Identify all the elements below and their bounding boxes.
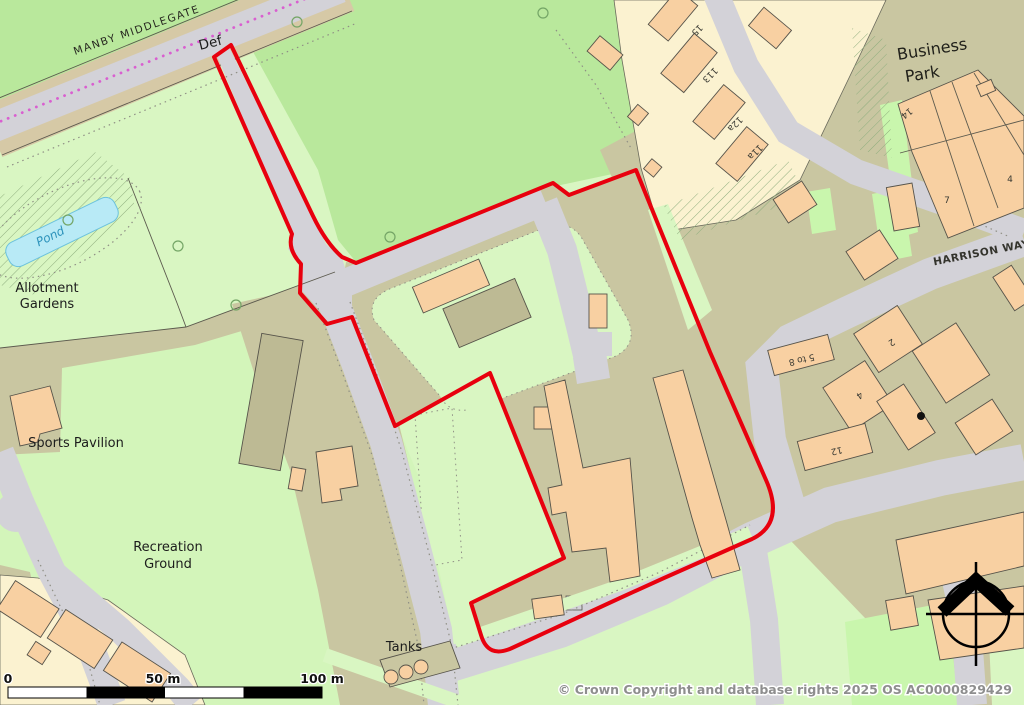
- tank-icon: [384, 670, 398, 684]
- scale-label-0: 0: [4, 671, 13, 686]
- allotment-gardens-label-1: Allotment: [15, 281, 78, 296]
- house-number: 4: [1007, 175, 1013, 185]
- yard-grey-small-2: [598, 332, 612, 356]
- scale-label-50m: 50 m: [146, 671, 181, 686]
- map-canvas: MANBY MIDDLEGATE Def Pond Allotment Gard…: [0, 0, 1024, 705]
- recreation-ground-label-2: Ground: [144, 557, 192, 572]
- building: [589, 294, 607, 328]
- building: [532, 595, 564, 619]
- building: [886, 596, 919, 630]
- point-feature: [917, 412, 925, 420]
- scale-bar-segment: [244, 687, 323, 698]
- tank-icon: [414, 660, 428, 674]
- road-bottom-branch: [752, 545, 770, 705]
- allotment-gardens-label-2: Gardens: [20, 297, 75, 312]
- sports-pavilion-label: Sports Pavilion: [28, 436, 124, 451]
- scale-bar-segment: [87, 687, 166, 698]
- tank-icon: [399, 665, 413, 679]
- tanks-label: Tanks: [385, 640, 423, 655]
- os-site-plan: MANBY MIDDLEGATE Def Pond Allotment Gard…: [0, 0, 1024, 705]
- copyright-attribution: © Crown Copyright and database rights 20…: [558, 682, 1012, 697]
- house-number: 7: [944, 196, 950, 206]
- recreation-ground-label-1: Recreation: [133, 540, 203, 555]
- scale-label-100m: 100 m: [300, 671, 343, 686]
